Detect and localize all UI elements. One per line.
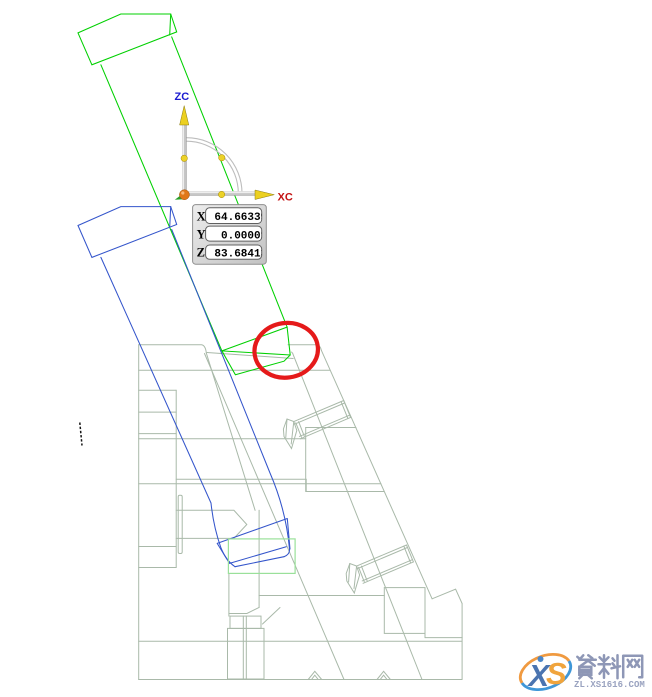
svg-text:Y: Y xyxy=(197,228,206,242)
svg-text:XC: XC xyxy=(278,191,293,203)
svg-text:64.66339: 64.66339 xyxy=(214,212,267,224)
svg-text:83.68413: 83.68413 xyxy=(214,248,267,260)
svg-text:ZL.XS1616.COM: ZL.XS1616.COM xyxy=(574,680,645,690)
svg-text:Z: Z xyxy=(197,246,205,260)
svg-text:X: X xyxy=(197,209,206,223)
svg-text:S: S xyxy=(546,656,567,691)
svg-text:ZC: ZC xyxy=(175,91,190,103)
